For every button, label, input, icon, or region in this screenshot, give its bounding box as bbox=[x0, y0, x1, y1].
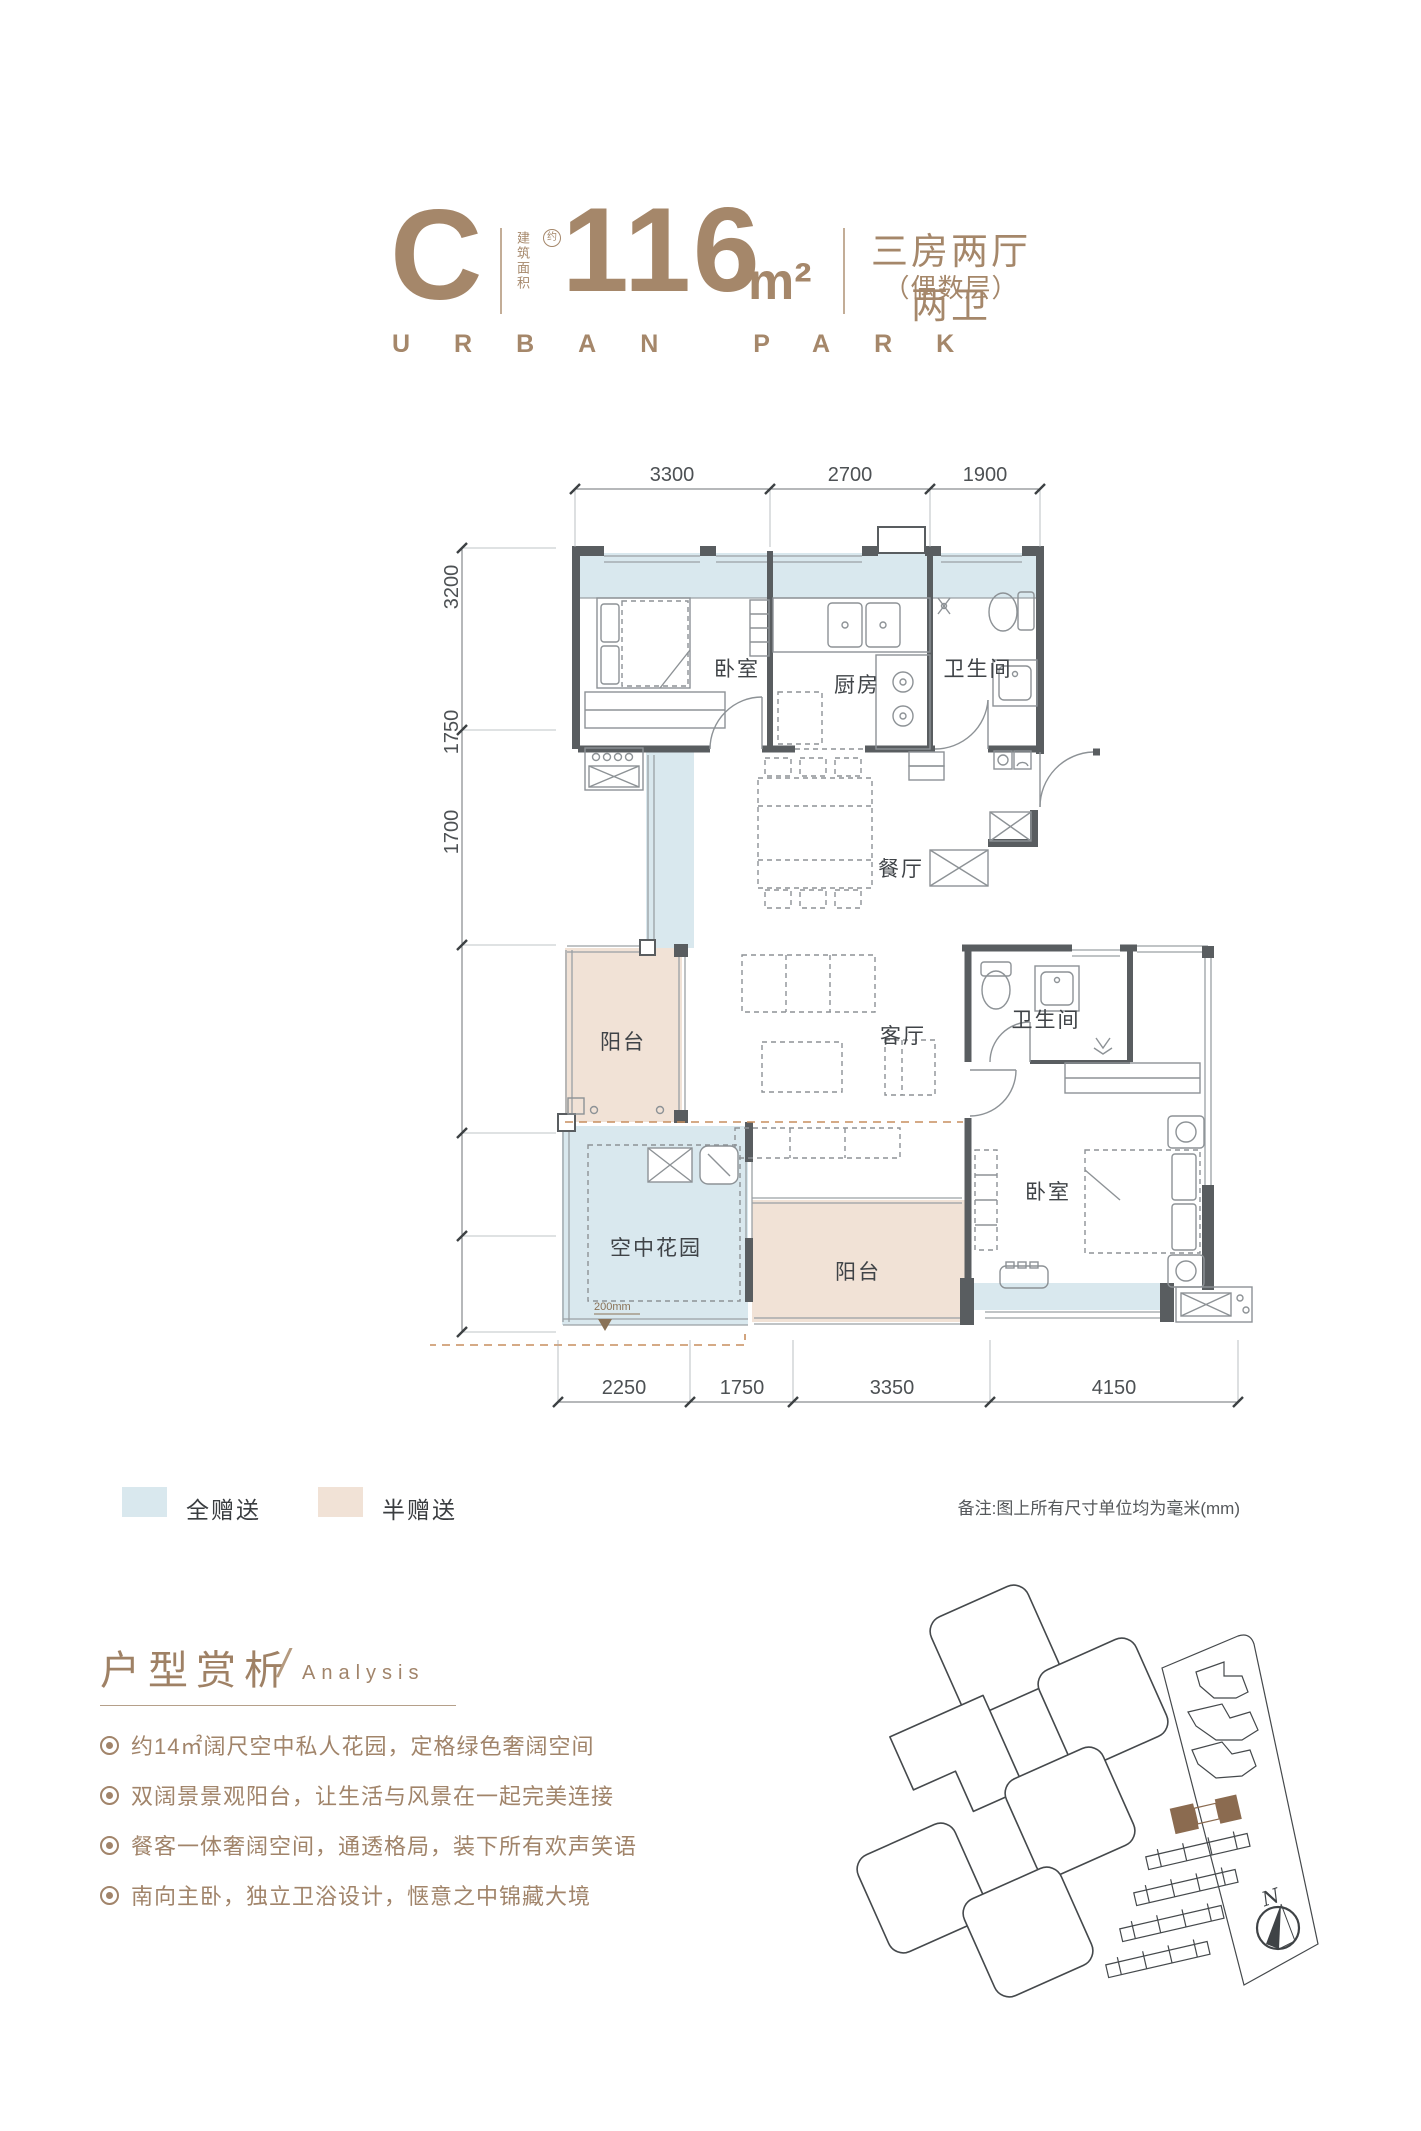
site-map: N bbox=[840, 1530, 1421, 2000]
analysis-bullet: 约14㎡阔尺空中私人花园，定格绿色奢阔空间 bbox=[100, 1730, 594, 1760]
analysis-bullet: 双阔景景观阳台，让生活与风景在一起完美连接 bbox=[100, 1780, 614, 1810]
room-label-bath-right: 卫生间 bbox=[1012, 1009, 1081, 1032]
area-label-vertical: 建筑面积 bbox=[515, 231, 531, 291]
analysis-title: 户型赏析 bbox=[100, 1638, 292, 1696]
room-label-dining: 餐厅 bbox=[878, 858, 924, 881]
analysis-divider bbox=[100, 1705, 456, 1706]
legend-swatch-half-gift bbox=[318, 1487, 363, 1517]
legend-label-full-gift: 全赠送 bbox=[186, 1491, 261, 1525]
room-label-bath-top: 卫生间 bbox=[944, 658, 1013, 681]
area-unit: m² bbox=[748, 252, 812, 312]
sky-garden-drop-note: 200mm bbox=[594, 1301, 631, 1313]
header-divider bbox=[843, 228, 845, 314]
svg-text:1750: 1750 bbox=[720, 1377, 765, 1399]
svg-text:3300: 3300 bbox=[650, 464, 695, 486]
svg-text:4150: 4150 bbox=[1092, 1377, 1137, 1399]
svg-text:1700: 1700 bbox=[441, 810, 463, 855]
unit-letter: C bbox=[390, 196, 482, 316]
analysis-bullet: 餐客一体奢阔空间，通透格局，装下所有欢声笑语 bbox=[100, 1830, 637, 1860]
svg-text:2250: 2250 bbox=[602, 1377, 647, 1399]
header-divider bbox=[500, 228, 502, 314]
bullet-icon bbox=[100, 1886, 119, 1905]
legend-label-half-gift: 半赠送 bbox=[382, 1491, 457, 1525]
analysis-slash: / bbox=[278, 1642, 289, 1687]
svg-text:1750: 1750 bbox=[441, 710, 463, 755]
unit-note: 备注:图上所有尺寸单位均为毫米(mm) bbox=[760, 1494, 1240, 1519]
room-label-balcony-left: 阳台 bbox=[600, 1031, 646, 1054]
room-label-balcony-bottom: 阳台 bbox=[835, 1261, 881, 1284]
site-blocks bbox=[852, 1580, 1173, 2000]
bullet-icon bbox=[100, 1786, 119, 1805]
room-label-bedroom-top: 卧室 bbox=[714, 658, 760, 681]
bullet-icon bbox=[100, 1836, 119, 1855]
legend-swatch-full-gift bbox=[122, 1487, 167, 1517]
svg-text:2700: 2700 bbox=[828, 464, 873, 486]
area-value: 116 bbox=[562, 185, 762, 315]
room-label-living: 客厅 bbox=[880, 1025, 926, 1048]
brand-english: URBAN PARK bbox=[392, 330, 1092, 359]
analysis-subtitle: Analysis bbox=[302, 1662, 424, 1685]
svg-text:3200: 3200 bbox=[441, 565, 463, 610]
compass: N bbox=[1257, 1883, 1299, 1949]
floor-note: （偶数层） bbox=[860, 268, 1042, 305]
bullet-icon bbox=[100, 1736, 119, 1755]
svg-text:3350: 3350 bbox=[870, 1377, 915, 1399]
room-label-sky-garden: 空中花园 bbox=[610, 1237, 702, 1260]
svg-text:1900: 1900 bbox=[963, 464, 1008, 486]
row-buildings bbox=[1105, 1829, 1250, 1978]
poster-page: C 建筑面积 约 116 m² 三房两厅两卫 （偶数层） URBAN PARK bbox=[0, 0, 1421, 2131]
room-label-bedroom-right: 卧室 bbox=[1025, 1181, 1071, 1204]
highlighted-building bbox=[1170, 1793, 1242, 1834]
floorplan: 改造空间 3300 2700 1900 bbox=[430, 440, 1260, 1430]
analysis-bullet: 南向主卧，独立卫浴设计，惬意之中锦藏大境 bbox=[100, 1880, 591, 1910]
room-label-kitchen: 厨房 bbox=[834, 674, 880, 697]
compass-needle-icon bbox=[1266, 1904, 1281, 1949]
area-approx-badge: 约 bbox=[543, 229, 561, 247]
